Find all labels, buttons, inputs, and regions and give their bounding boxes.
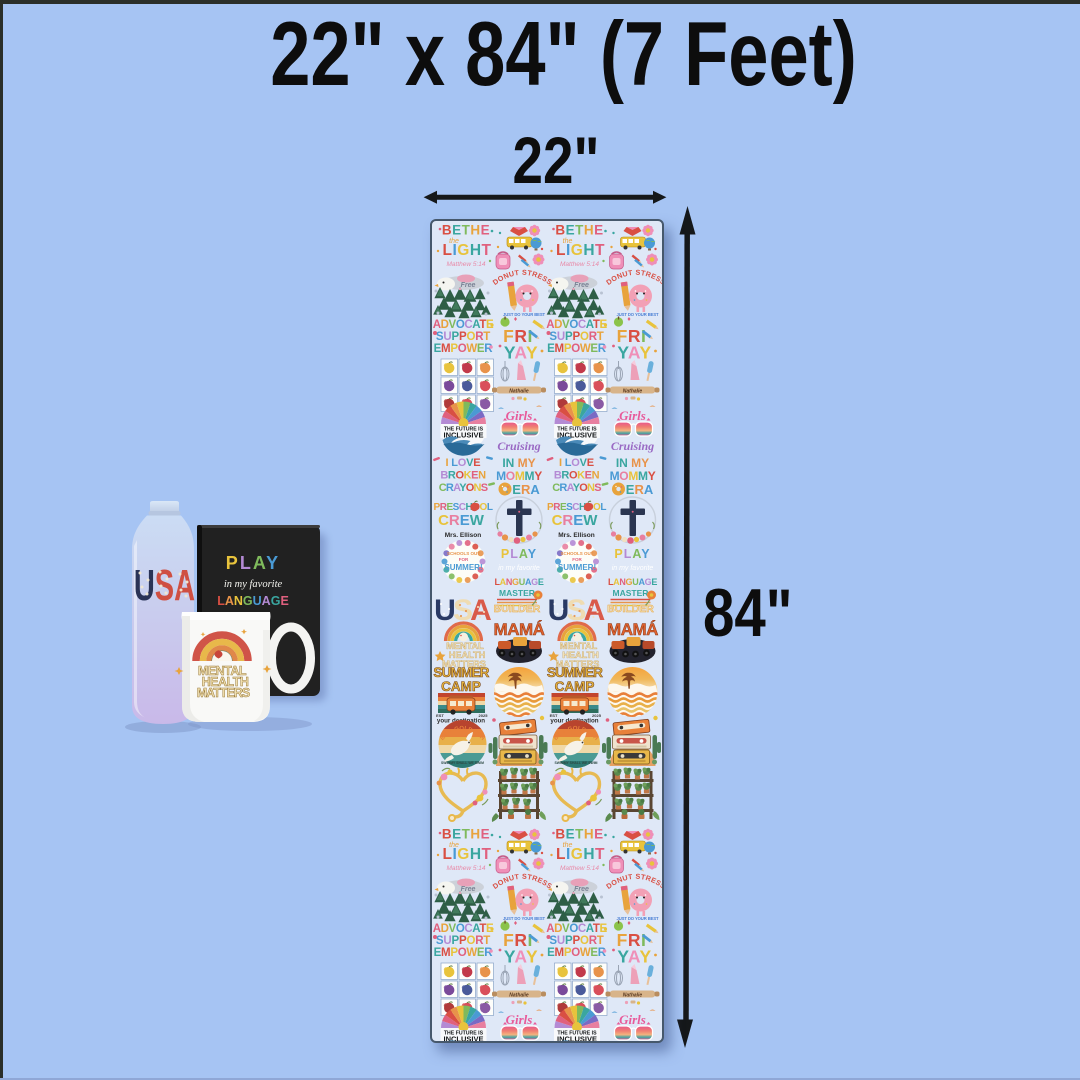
svg-text:U: U (134, 560, 155, 610)
svg-text:S: S (155, 560, 174, 610)
svg-text:LANGUAGE: LANGUAGE (217, 594, 289, 608)
svg-text:PLAY: PLAY (226, 553, 280, 573)
svg-text:in my favorite: in my favorite (224, 579, 283, 590)
svg-text:A: A (174, 560, 195, 610)
svg-text:MATTERS: MATTERS (197, 686, 250, 700)
